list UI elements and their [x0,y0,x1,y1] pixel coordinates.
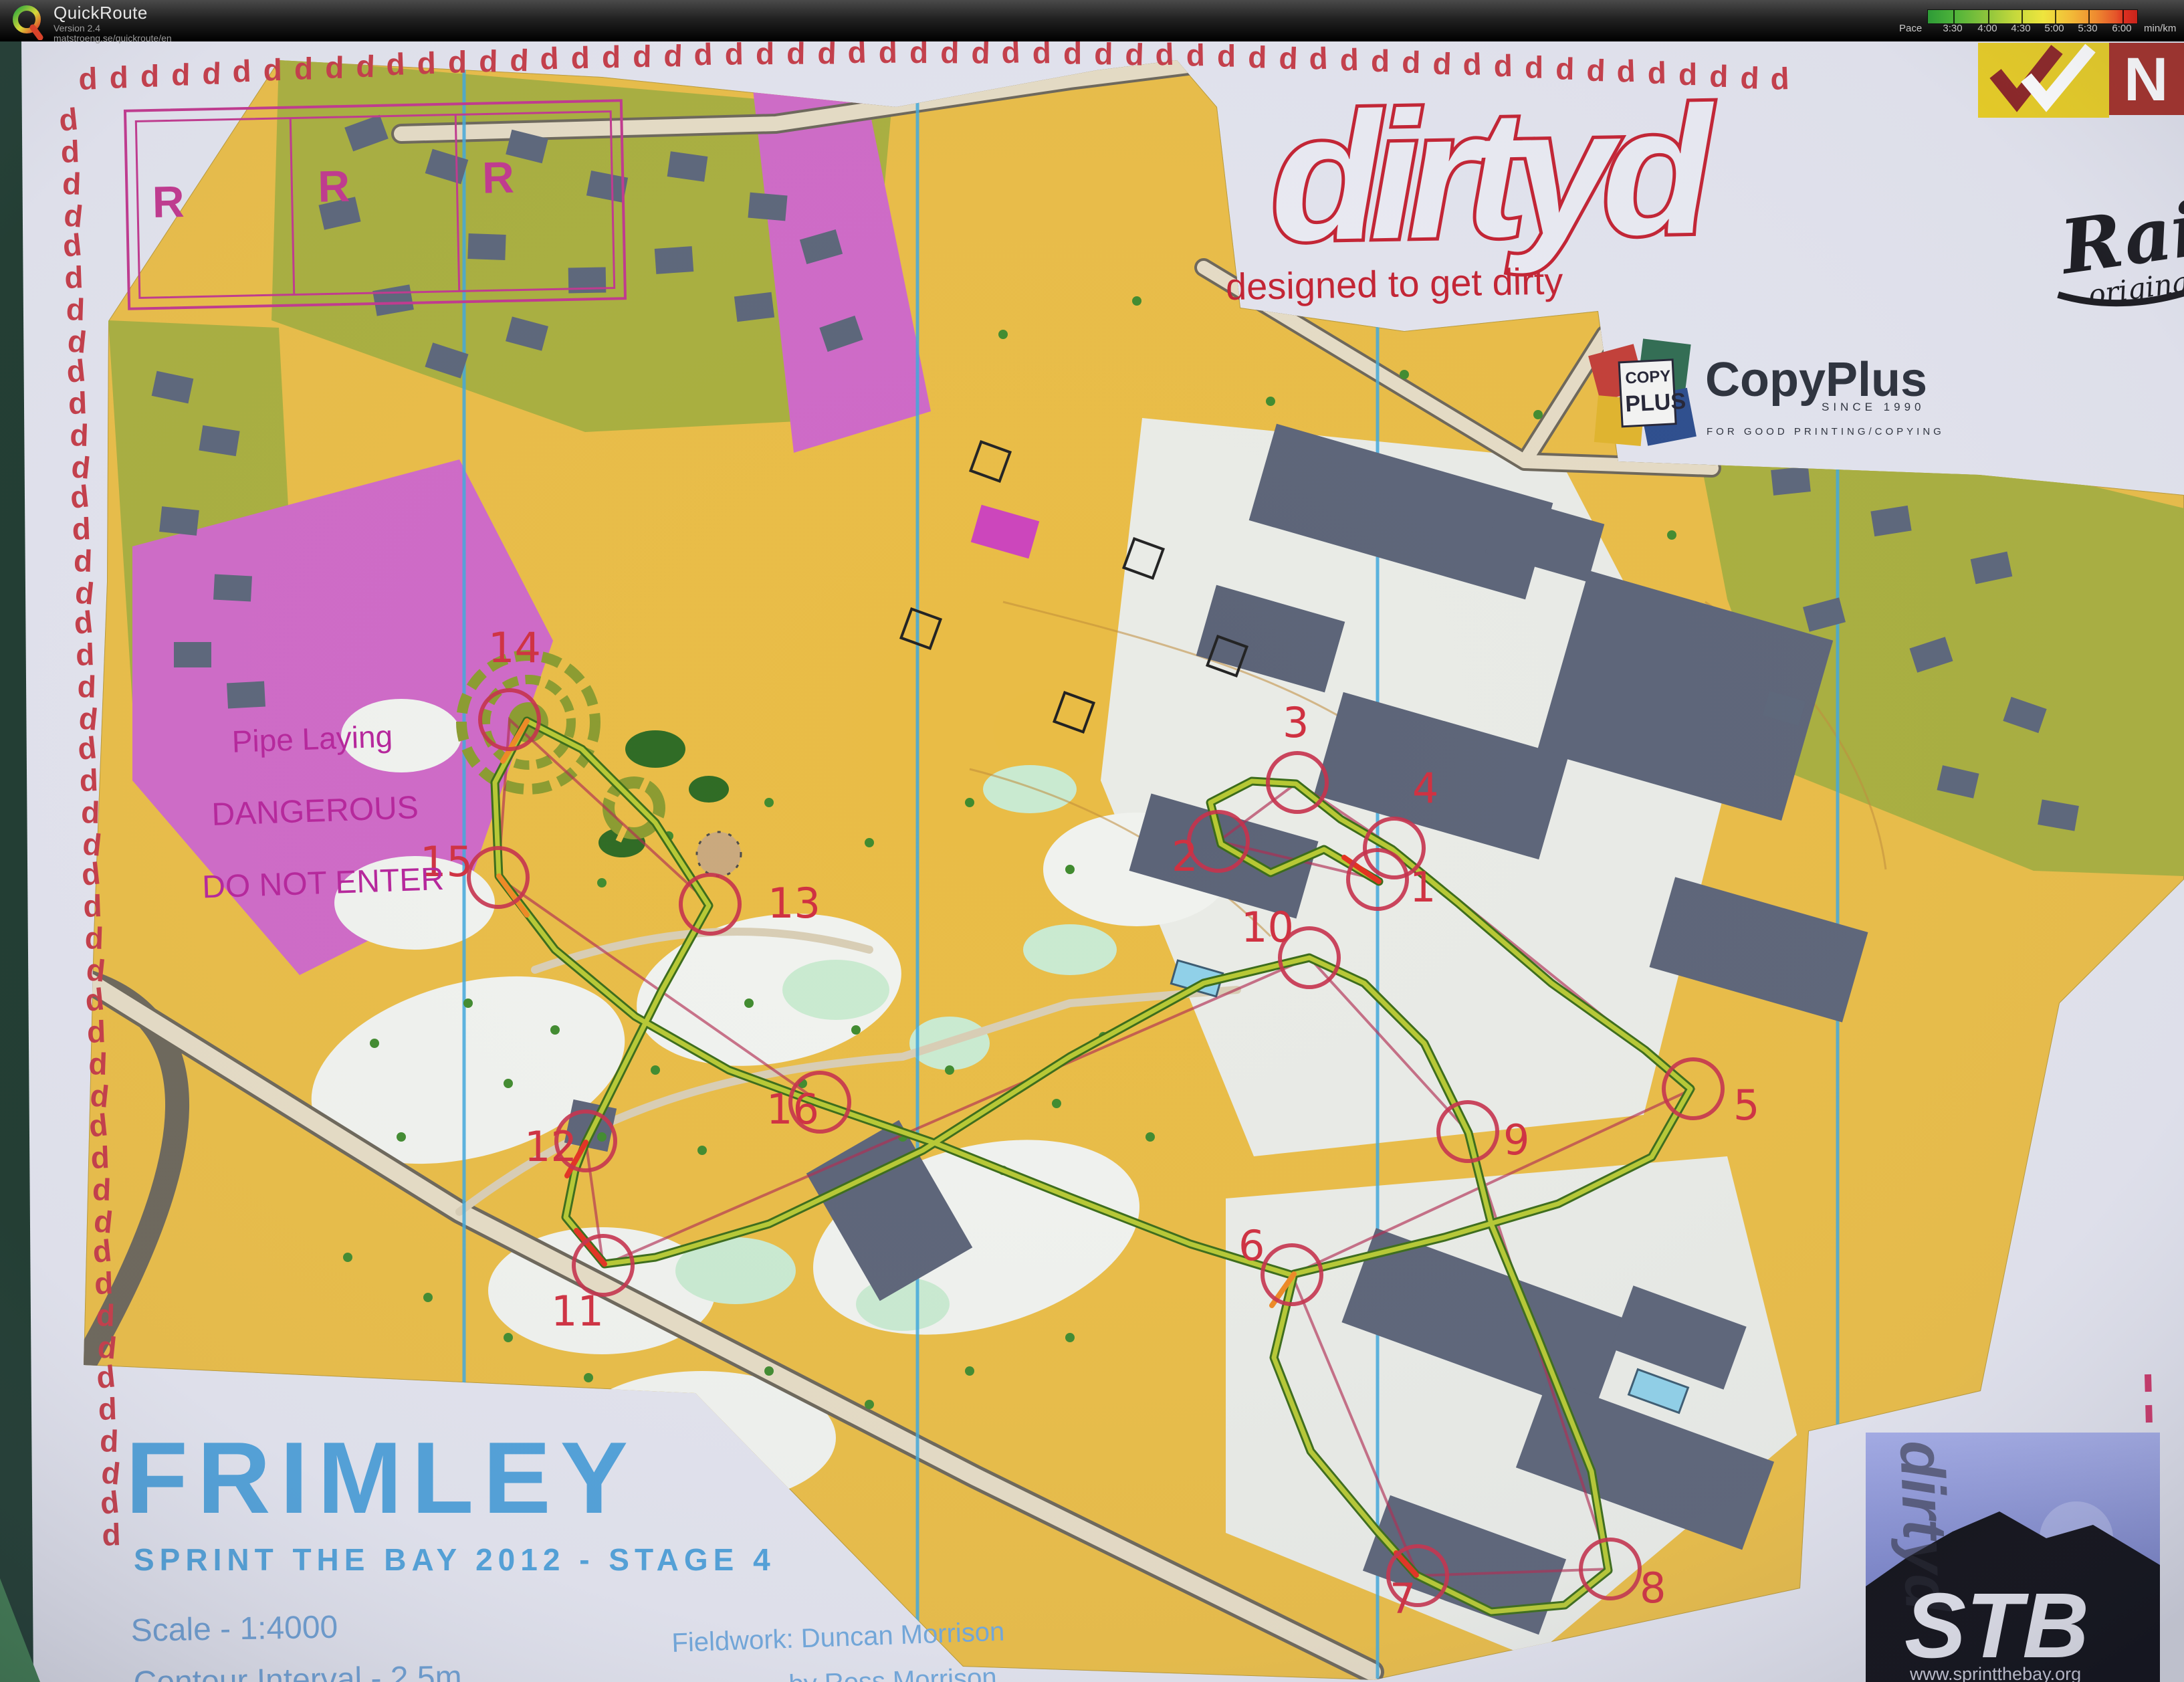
tree-dot [1052,1099,1061,1108]
pace-tick-label: 6:00 [2112,23,2131,34]
pace-tick [2022,10,2023,23]
stb-name: STB [1904,1574,2089,1677]
border-d-glyph: d [386,46,406,82]
warning-line2: DANGEROUS [211,790,419,833]
control-number-6: 6 [1238,1221,1265,1270]
control-number-16: 16 [766,1085,819,1134]
border-d-glyph: d [72,604,94,641]
border-d-glyph: d [77,669,97,704]
tree-dot [697,1146,707,1155]
border-d-glyph: d [72,511,92,546]
house-block [467,233,506,260]
registration-r: R [318,161,350,211]
border-d-glyph: d [109,60,128,94]
border-d-glyph: d [510,42,530,78]
border-d-glyph: d [232,54,252,89]
border-d-glyph: d [79,762,99,798]
border-d-glyph: d [663,38,683,74]
copyplus-badge-top: COPY [1625,367,1671,388]
border-d-glyph: d [1709,58,1729,93]
tree-dot [597,878,607,887]
tree-dot [965,798,974,807]
tree-dot [370,1039,379,1048]
tree-dot [597,1132,607,1142]
house-block [667,151,708,181]
border-d-glyph: d [66,292,86,327]
border-d-glyph: d [64,259,84,295]
tree-dot [764,798,774,807]
tree-dot [744,998,754,1008]
tree-dot [423,1293,433,1302]
pace-tick [2088,10,2090,23]
border-d-glyph: d [90,1140,110,1175]
border-d-glyph: d [602,39,621,74]
pace-tick [1953,10,1955,23]
tree-dot [1533,410,1543,419]
registration-r: R [152,177,185,227]
map-scale: Scale - 1:4000 [130,1610,338,1649]
border-d-glyph: d [95,1358,117,1395]
control-number-11: 11 [551,1287,604,1336]
pace-tick [1988,10,1989,23]
pace-gradient-bar[interactable] [1927,9,2138,24]
border-d-glyph: d [78,61,98,96]
control-number-13: 13 [768,879,821,928]
control-number-10: 10 [1241,903,1294,952]
pace-legend-unit: min/km [2144,23,2176,34]
border-d-glyph: d [80,855,102,892]
tree-dot [584,1373,593,1382]
app-website: matstroeng.se/quickroute/en [53,33,172,43]
bandstand-feature [697,832,741,876]
stb-logo: dirtyd STB www.sprintthebay.org [1866,1433,2160,1682]
dirty-logo-tagline: designed to get dirty [1225,259,1563,308]
tree-dot [1132,296,1141,306]
border-d-glyph: d [1339,42,1359,77]
border-d-glyph: d [68,478,90,515]
border-d-glyph: d [294,51,313,86]
tree-dot [504,1333,513,1342]
dirty-logo-text: dirtyd [1269,70,1719,280]
border-d-glyph: d [102,1517,122,1552]
border-d-glyph: d [171,57,191,92]
tree-dot [1266,397,1275,406]
event-title: SPRINT THE BAY 2012 - STAGE 4 [134,1542,776,1577]
title-bar: QuickRoute Version 2.4 matstroeng.se/qui… [0,0,2184,41]
dirty-logo: dirtyd designed to get dirty [1222,70,1720,308]
border-d-glyph: d [60,134,80,169]
control-number-7: 7 [1390,1574,1416,1623]
tree-dot [1145,1132,1155,1142]
warning-line1: Pipe Laying [231,718,393,758]
tree-dot [764,1366,774,1376]
border-d-glyph: d [570,40,590,75]
map-title: FRIMLEY [126,1421,637,1535]
copyplus-name: CopyPlus [1705,353,1927,407]
control-number-4: 4 [1412,764,1438,813]
pace-tick [2122,10,2124,23]
house-block [174,642,211,667]
pace-tick-label: 4:00 [1977,23,1997,34]
border-d-glyph: d [94,1265,114,1301]
border-d-glyph: d [1770,61,1790,96]
tree-dot [865,838,874,847]
tree-dot [1065,1333,1075,1342]
border-d-glyph: d [140,58,159,93]
border-d-glyph: d [70,417,90,453]
border-d-glyph: d [724,36,744,71]
pace-legend: Pace min/km 3:30 4:00 4:30 5:00 5:30 6:0… [1899,5,2180,39]
house-block [1771,466,1811,496]
control-number-2: 2 [1172,832,1198,881]
border-d-glyph: d [58,101,80,138]
border-d-glyph: d [65,352,87,389]
house-block [655,246,694,274]
border-d-glyph: d [96,1297,116,1333]
border-d-glyph: d [80,795,100,830]
border-d-glyph: d [417,45,436,80]
border-d-glyph: d [1371,43,1390,78]
pace-tick-label: 5:00 [2044,23,2064,34]
border-d-glyph: d [84,981,106,1018]
house-block [734,292,774,322]
border-d-glyph: d [73,543,93,579]
border-d-glyph: d [98,1391,118,1427]
tree-dot [945,1065,954,1075]
control-number-9: 9 [1503,1116,1529,1164]
house-block [227,681,265,709]
nz-letter: N [2124,45,2168,114]
app-version: Version 2.4 [53,23,172,33]
registration-r: R [481,152,514,203]
control-number-12: 12 [524,1122,577,1171]
control-number-5: 5 [1733,1081,1759,1130]
tree-dot [1400,370,1409,379]
tree-dot [1065,865,1075,874]
stb-url: www.sprintthebay.org [1909,1664,2081,1682]
border-d-glyph: d [61,227,83,264]
pace-tick [2055,10,2056,23]
border-d-glyph: d [263,52,282,87]
border-d-glyph: d [99,1423,119,1459]
border-d-glyph: d [356,48,376,84]
house-block [213,574,252,602]
border-d-glyph: d [68,385,88,421]
control-number-8: 8 [1640,1564,1666,1612]
house-block [159,506,199,536]
border-d-glyph: d [1155,37,1175,72]
border-d-glyph: d [540,41,560,76]
copyplus-badge-bottom: PLUS [1624,389,1686,417]
app-title: QuickRoute [53,3,172,23]
control-number-14: 14 [488,623,541,672]
border-d-glyph: d [1186,37,1205,72]
border-d-glyph: d [75,637,95,672]
border-d-glyph: d [83,888,103,924]
border-d-glyph: d [98,1484,120,1521]
border-d-glyph: d [62,166,82,201]
tree-dot [851,1025,861,1035]
border-d-glyph: d [1309,41,1329,76]
tree-dot [343,1253,352,1262]
nz-check-badge: N [1978,43,2184,118]
border-d-glyph: d [479,43,498,78]
tree-dot [463,998,473,1008]
tree-dot [397,1132,406,1142]
quickroute-logo-icon [9,3,45,40]
tree-dot [504,1079,513,1088]
pace-tick-label: 5:30 [2078,23,2097,34]
copyplus-tagline: FOR GOOD PRINTING/COPYING [1707,426,1945,437]
map-photo-canvas[interactable]: 12345678910111213141516 dddddddddddddddd… [0,0,2184,1682]
pace-tick-label: 4:30 [2011,23,2030,34]
tree-dot [965,1366,974,1376]
copyplus-since: SINCE 1990 [1822,401,1925,413]
pace-tick-label: 3:30 [1943,23,1962,34]
border-d-glyph: d [76,730,98,766]
border-d-glyph: d [92,1172,112,1207]
border-d-glyph: d [86,1014,106,1049]
border-d-glyph: d [88,1046,108,1081]
pace-legend-label: Pace [1899,23,1922,34]
border-d-glyph: d [448,45,467,80]
tree-dot [998,330,1008,339]
border-d-glyph: d [1217,39,1236,74]
border-d-glyph: d [91,1233,113,1269]
border-d-glyph: d [87,1107,109,1144]
border-d-glyph: d [1125,37,1145,72]
control-number-3: 3 [1283,698,1309,747]
tree-dot [651,1065,660,1075]
house-block [748,193,787,221]
border-d-glyph: d [1740,60,1760,96]
border-d-glyph: d [84,920,104,956]
border-d-glyph: d [1279,40,1299,76]
tree-dot [550,1025,560,1035]
tree-dot [865,1400,874,1409]
border-d-glyph: d [633,39,652,74]
border-d-glyph: d [202,56,222,91]
border-d-glyph: d [693,37,714,72]
border-d-glyph: d [1248,39,1267,74]
tree-dot [1667,530,1676,540]
border-d-glyph: d [325,49,344,84]
